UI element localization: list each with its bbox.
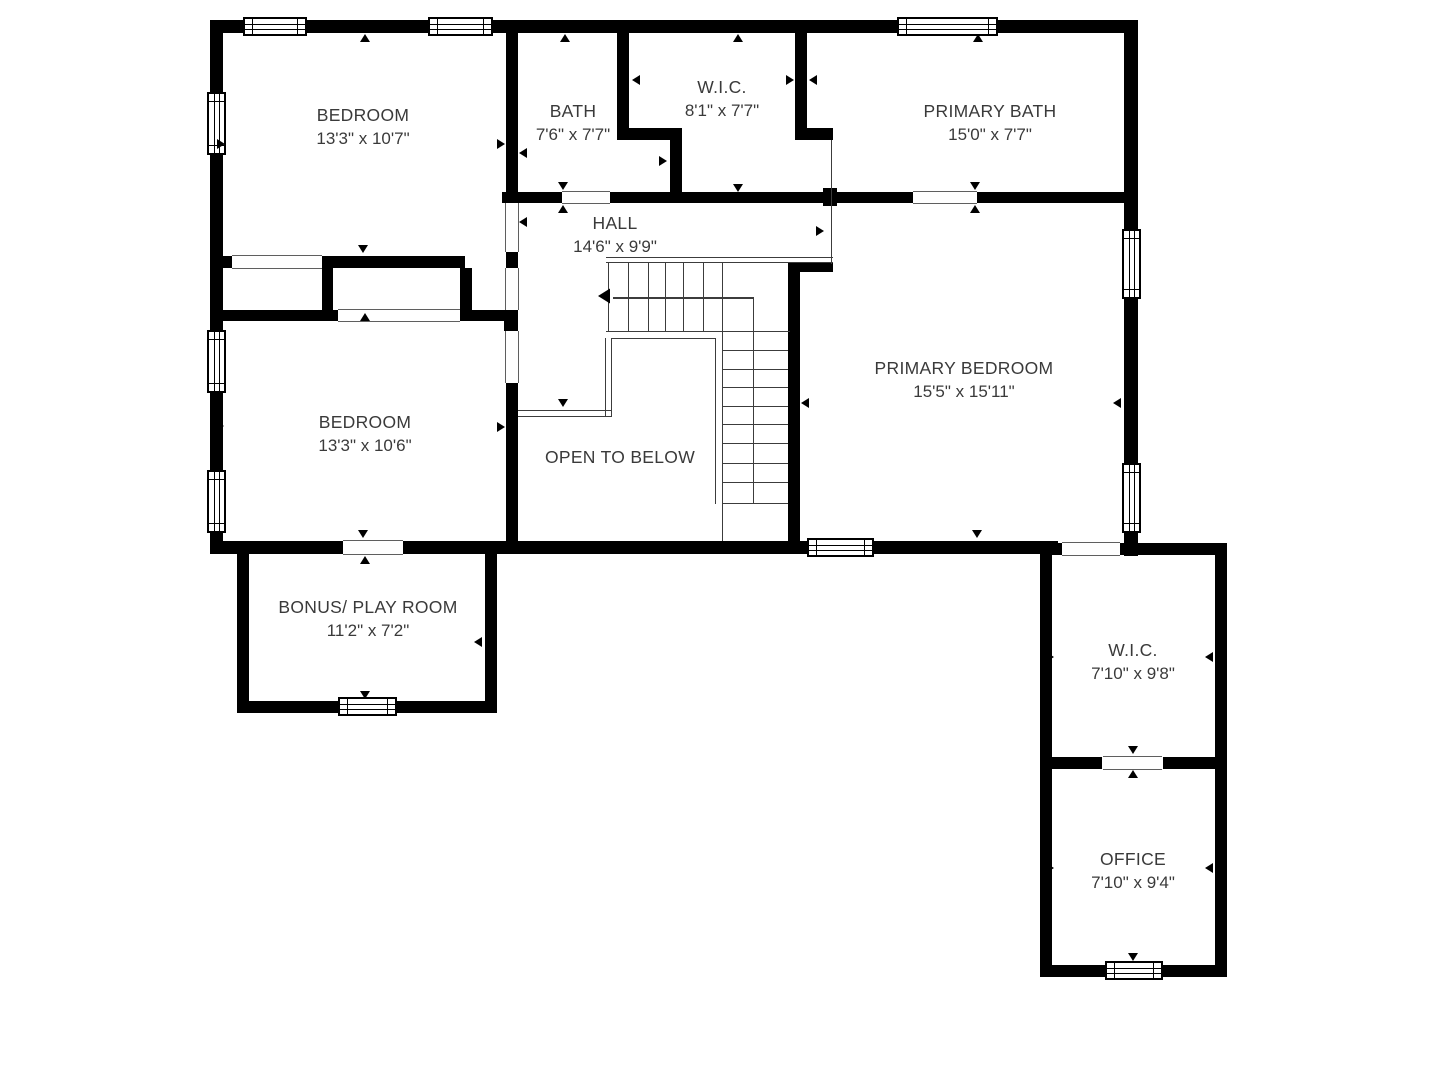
right-direction-arrow	[816, 226, 824, 236]
right-direction-arrow	[786, 75, 794, 85]
door-opening	[338, 309, 460, 322]
up-direction-arrow	[560, 34, 570, 42]
wall-segment	[237, 553, 249, 713]
door-opening	[1062, 542, 1120, 556]
door-opening	[232, 255, 322, 269]
stair-railing-line	[723, 369, 788, 370]
room-label: BEDROOM13'3" x 10'7"	[316, 103, 409, 151]
room-name: PRIMARY BEDROOM	[875, 356, 1054, 380]
up-direction-arrow	[973, 34, 983, 42]
left-direction-arrow	[809, 75, 817, 85]
left-direction-arrow	[519, 148, 527, 158]
room-label: OPEN TO BELOW	[545, 445, 695, 469]
stair-railing-line	[518, 416, 612, 417]
wall-segment	[788, 263, 800, 541]
window-end-cap	[1124, 523, 1139, 524]
wall-segment	[506, 252, 518, 268]
window-pane-line	[1134, 231, 1135, 297]
wall-segment	[807, 128, 833, 140]
room-dimensions: 13'3" x 10'7"	[316, 127, 409, 151]
wall-segment	[1163, 757, 1215, 769]
window	[207, 330, 226, 393]
wall-segment	[823, 188, 837, 206]
wall-segment	[670, 140, 682, 192]
stair-railing-line	[723, 350, 788, 351]
window	[207, 470, 226, 533]
left-direction-arrow	[1113, 398, 1121, 408]
window	[338, 697, 397, 716]
stair-railing-line	[606, 262, 833, 263]
window-end-cap	[387, 699, 388, 714]
stair-railing-line	[723, 482, 788, 483]
down-direction-arrow	[360, 691, 370, 699]
window-pane-line	[1129, 231, 1130, 297]
left-direction-arrow	[632, 75, 640, 85]
wall-segment	[506, 20, 518, 203]
wall-segment	[1040, 543, 1052, 977]
right-direction-arrow	[659, 156, 667, 166]
window	[1105, 961, 1163, 980]
room-dimensions: 15'0" x 7'7"	[924, 123, 1057, 147]
down-direction-arrow	[558, 399, 568, 407]
wall-segment	[485, 553, 497, 713]
window-pane-line	[899, 24, 996, 25]
window-pane-line	[809, 545, 872, 546]
down-direction-arrow	[358, 245, 368, 253]
left-direction-arrow	[519, 217, 527, 227]
up-direction-arrow	[1128, 770, 1138, 778]
wall-segment	[210, 541, 1058, 554]
door-opening	[913, 191, 977, 204]
stair-railing-line	[722, 263, 723, 541]
up-direction-arrow	[360, 34, 370, 42]
window-end-cap	[483, 19, 484, 34]
window-end-cap	[437, 19, 438, 34]
window-end-cap	[347, 699, 348, 714]
right-direction-arrow	[216, 421, 224, 431]
wall-segment	[629, 128, 682, 140]
wall-segment	[610, 192, 913, 203]
left-direction-arrow	[1205, 652, 1213, 662]
wall-segment	[502, 192, 562, 203]
room-label: BATH7'6" x 7'7"	[536, 99, 610, 147]
down-direction-arrow	[1128, 548, 1138, 556]
window	[1122, 463, 1141, 533]
window-end-cap	[297, 19, 298, 34]
window-end-cap	[816, 540, 817, 555]
room-name: BONUS/ PLAY ROOM	[278, 595, 457, 619]
room-dimensions: 8'1" x 7'7"	[685, 99, 759, 123]
stair-railing-line	[611, 338, 716, 339]
down-direction-arrow	[558, 182, 568, 190]
wall-segment	[977, 192, 1124, 203]
wall-segment	[322, 268, 333, 313]
stair-railing-line	[606, 331, 790, 332]
wall-segment	[1052, 757, 1102, 769]
window-end-cap	[209, 479, 224, 480]
wall-segment	[322, 256, 465, 268]
window-end-cap	[209, 339, 224, 340]
room-name: W.I.C.	[685, 75, 759, 99]
stair-railing-line	[611, 338, 612, 417]
down-direction-arrow	[358, 530, 368, 538]
room-dimensions: 7'10" x 9'4"	[1091, 871, 1175, 895]
wall-segment	[460, 310, 517, 321]
window-end-cap	[1124, 238, 1139, 239]
room-name: W.I.C.	[1091, 638, 1175, 662]
room-name: HALL	[573, 211, 657, 235]
wall-segment	[800, 263, 833, 272]
stair-railing-line	[753, 298, 754, 504]
stair-railing-line	[723, 406, 788, 407]
right-direction-arrow	[1046, 652, 1054, 662]
window-end-cap	[1124, 472, 1139, 473]
window-end-cap	[209, 383, 224, 384]
window-end-cap	[252, 19, 253, 34]
down-direction-arrow	[972, 530, 982, 538]
stair-railing-line	[723, 443, 788, 444]
window-end-cap	[906, 19, 907, 34]
window-end-cap	[209, 101, 224, 102]
left-direction-arrow	[474, 637, 482, 647]
right-direction-arrow	[1046, 863, 1054, 873]
window	[243, 17, 307, 36]
room-label: HALL14'6" x 9'9"	[573, 211, 657, 259]
room-label: W.I.C.7'10" x 9'8"	[1091, 638, 1175, 686]
stair-railing-line	[605, 338, 606, 417]
stair-railing-line	[831, 140, 832, 264]
room-name: BATH	[536, 99, 610, 123]
left-direction-arrow	[801, 398, 809, 408]
down-direction-arrow	[1128, 953, 1138, 961]
wall-segment	[1215, 543, 1227, 977]
room-label: BONUS/ PLAY ROOM11'2" x 7'2"	[278, 595, 457, 643]
window-end-cap	[1114, 963, 1115, 978]
window-pane-line	[1134, 465, 1135, 531]
door-opening	[1103, 756, 1162, 770]
room-label: PRIMARY BATH15'0" x 7'7"	[924, 99, 1057, 147]
right-direction-arrow	[217, 139, 225, 149]
window-pane-line	[1129, 465, 1130, 531]
right-direction-arrow	[497, 422, 505, 432]
stair-railing-line	[723, 463, 788, 464]
door-opening	[505, 331, 519, 383]
stair-railing-line	[723, 503, 788, 504]
room-label: PRIMARY BEDROOM15'5" x 15'11"	[875, 356, 1054, 404]
door-opening	[505, 268, 519, 310]
window-end-cap	[988, 19, 989, 34]
stair-railing-line	[613, 297, 754, 299]
room-name: OPEN TO BELOW	[545, 445, 695, 469]
window	[428, 17, 493, 36]
right-direction-arrow	[241, 637, 249, 647]
left-direction-arrow	[1205, 863, 1213, 873]
room-dimensions: 7'10" x 9'8"	[1091, 662, 1175, 686]
down-direction-arrow	[970, 182, 980, 190]
wall-segment	[210, 20, 1138, 33]
up-direction-arrow	[733, 34, 743, 42]
stair-railing-line	[715, 338, 716, 504]
floor-plan-canvas: BEDROOM13'3" x 10'7"BATH7'6" x 7'7"W.I.C…	[0, 0, 1440, 1073]
room-name: PRIMARY BATH	[924, 99, 1057, 123]
wall-segment	[223, 310, 338, 321]
window-end-cap	[1153, 963, 1154, 978]
window	[1122, 229, 1141, 299]
room-dimensions: 15'5" x 15'11"	[875, 380, 1054, 404]
room-label: BEDROOM13'3" x 10'6"	[318, 410, 411, 458]
window-end-cap	[864, 540, 865, 555]
window	[807, 538, 874, 557]
up-direction-arrow	[970, 205, 980, 213]
stair-railing-line	[518, 410, 612, 411]
window-end-cap	[1124, 289, 1139, 290]
window-pane-line	[809, 550, 872, 551]
door-opening	[562, 191, 610, 204]
wall-segment	[617, 20, 629, 140]
room-name: BEDROOM	[316, 103, 409, 127]
down-direction-arrow	[733, 184, 743, 192]
up-direction-arrow	[558, 205, 568, 213]
room-label: OFFICE7'10" x 9'4"	[1091, 847, 1175, 895]
stair-railing-line	[723, 424, 788, 425]
wall-segment	[506, 383, 518, 541]
room-dimensions: 7'6" x 7'7"	[536, 123, 610, 147]
room-name: BEDROOM	[318, 410, 411, 434]
room-name: OFFICE	[1091, 847, 1175, 871]
window-pane-line	[899, 29, 996, 30]
wall-segment	[795, 20, 807, 140]
door-opening	[505, 203, 519, 252]
up-direction-arrow	[360, 313, 370, 321]
right-direction-arrow	[497, 139, 505, 149]
room-dimensions: 14'6" x 9'9"	[573, 235, 657, 259]
door-opening	[343, 540, 403, 555]
room-dimensions: 11'2" x 7'2"	[278, 619, 457, 643]
left-direction-arrow	[598, 289, 610, 304]
window-end-cap	[209, 523, 224, 524]
down-direction-arrow	[1128, 746, 1138, 754]
room-dimensions: 13'3" x 10'6"	[318, 434, 411, 458]
stair-railing-line	[723, 387, 788, 388]
room-label: W.I.C.8'1" x 7'7"	[685, 75, 759, 123]
up-direction-arrow	[360, 556, 370, 564]
